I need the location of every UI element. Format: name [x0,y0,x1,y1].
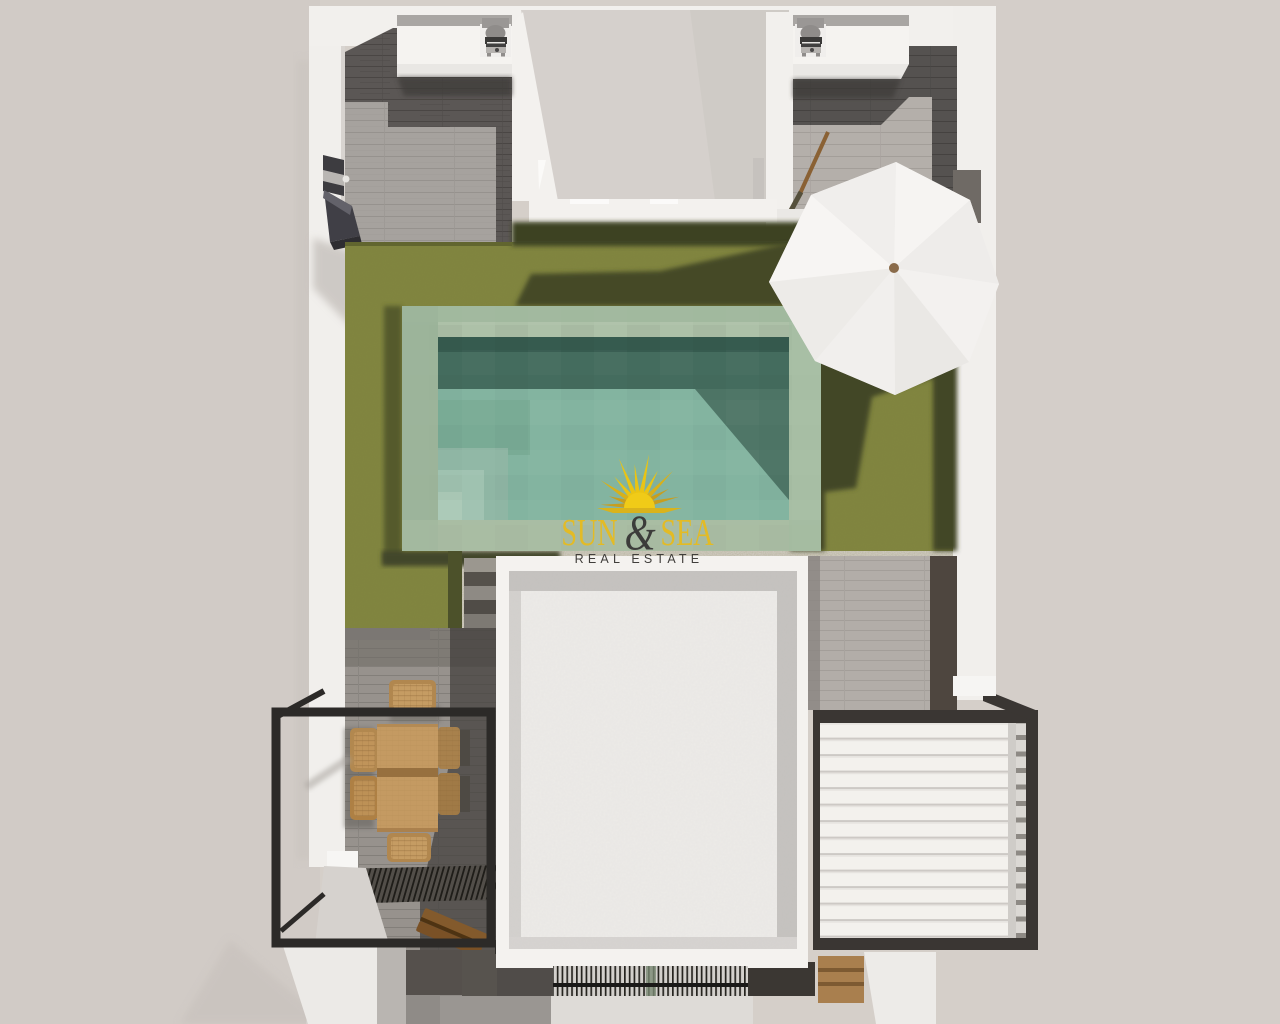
svg-text:REAL ESTATE: REAL ESTATE [575,552,704,566]
svg-text:SUN: SUN [561,512,617,554]
svg-text:SEA: SEA [660,512,713,554]
